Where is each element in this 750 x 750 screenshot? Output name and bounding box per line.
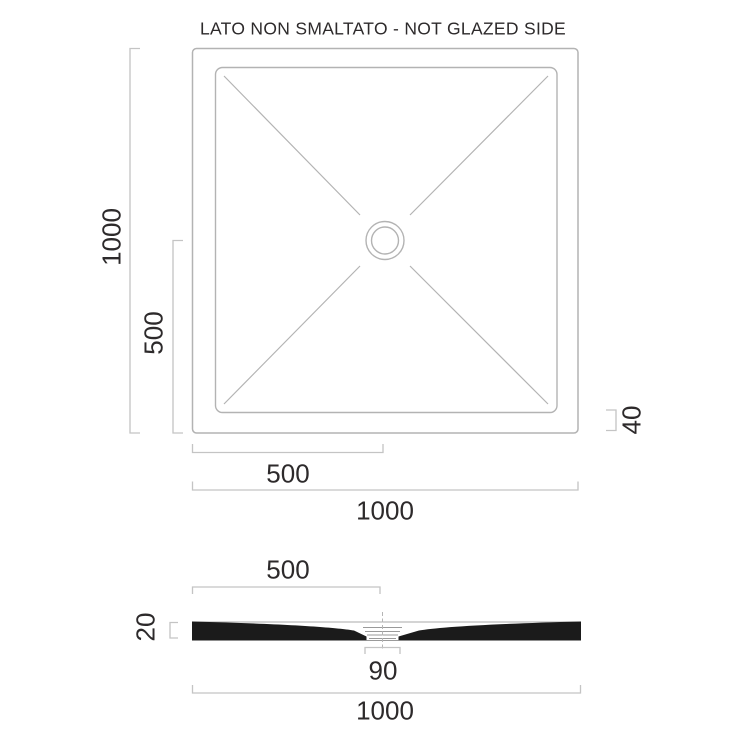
dim-line-plan-total-width: [193, 482, 579, 491]
technical-drawing-page: LATO NON SMALTATO - NOT GLAZED SIDE 1000…: [0, 0, 750, 750]
dim-line-plan-half-height: [173, 241, 183, 434]
diagonal-bottom-left: [224, 266, 360, 404]
section-dim-total-width: 1000: [356, 696, 414, 727]
dim-line-section-half-width: [193, 587, 381, 594]
drawing-title: LATO NON SMALTATO - NOT GLAZED SIDE: [200, 19, 566, 40]
section-body-right: [399, 622, 582, 641]
plan-dim-total-height: 1000: [97, 208, 128, 266]
dim-line-plan-half-width: [193, 444, 384, 453]
section-dim-half-width: 500: [266, 555, 309, 586]
plan-slope-diagonals: [224, 76, 548, 404]
plan-dim-half-height: 500: [139, 311, 170, 354]
diagonal-top-right: [410, 76, 548, 215]
drawing-geometry: [0, 0, 750, 750]
dim-line-plan-total-height: [130, 49, 140, 434]
drain-inner-circle: [372, 227, 399, 254]
section-dim-thickness: 20: [131, 613, 162, 642]
plan-dimension-lines: [130, 49, 616, 491]
plan-dim-half-width: 500: [266, 459, 309, 490]
plan-view: [130, 49, 616, 491]
section-body-left: [192, 622, 367, 641]
section-dim-drain-width: 90: [369, 656, 398, 687]
plan-drain: [366, 222, 404, 260]
plan-dim-edge-height: 40: [617, 406, 648, 435]
dim-line-plan-edge-height: [606, 410, 616, 431]
plan-outer-rim: [193, 49, 579, 434]
diagonal-bottom-right: [410, 266, 548, 404]
dim-line-section-thickness: [170, 623, 178, 639]
diagonal-top-left: [224, 76, 360, 215]
plan-dim-total-width: 1000: [356, 496, 414, 527]
